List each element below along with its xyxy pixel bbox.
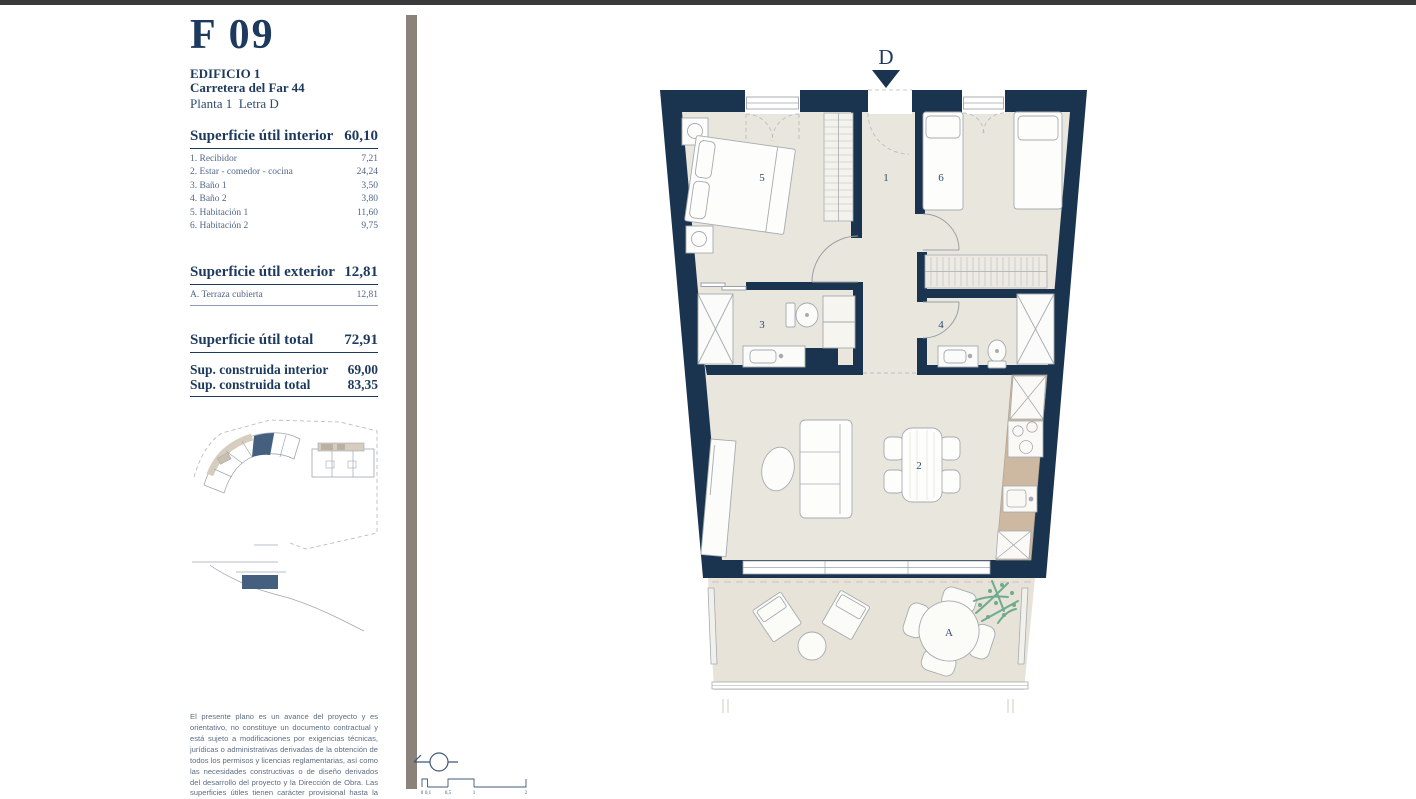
terrace bbox=[708, 576, 1035, 713]
shelf-unit bbox=[823, 296, 855, 348]
toilet bbox=[786, 303, 818, 327]
hob bbox=[1008, 421, 1043, 457]
room-label-living: 2 bbox=[916, 460, 922, 472]
room-label-bath1: 3 bbox=[759, 319, 765, 331]
room-label-bath2: 4 bbox=[938, 319, 944, 331]
room-label-bedroom2: 6 bbox=[938, 172, 944, 184]
entrance-opening bbox=[868, 87, 912, 114]
entrance-marker-icon bbox=[872, 70, 900, 88]
scale-tick-label: 2 bbox=[525, 791, 528, 796]
wardrobe bbox=[824, 113, 853, 221]
room-label-bedroom1: 5 bbox=[759, 172, 765, 184]
sink bbox=[938, 346, 978, 367]
scale-bar: 0 0,1 0,5 1 2 bbox=[418, 773, 538, 799]
double-bed bbox=[685, 135, 796, 234]
side-table bbox=[798, 632, 826, 660]
floor-plan: D bbox=[0, 0, 1416, 799]
single-bed bbox=[1014, 112, 1062, 209]
plan-sheet: F 09 EDIFICIO 1 Carretera del Far 44 Pla… bbox=[0, 0, 1416, 799]
single-bed bbox=[923, 112, 963, 210]
shower bbox=[698, 294, 733, 364]
dining-table bbox=[902, 428, 942, 502]
entrance-label: D bbox=[878, 45, 893, 69]
scale-tick-label: 0,5 bbox=[445, 791, 452, 796]
sofa bbox=[800, 420, 852, 518]
nightstand bbox=[686, 226, 713, 253]
room-label-hall: 1 bbox=[883, 172, 889, 184]
sliding-door bbox=[743, 561, 990, 574]
toilet bbox=[988, 340, 1006, 368]
room-label-terrace: A bbox=[945, 627, 953, 639]
scale-tick-label: 0 bbox=[421, 791, 424, 796]
scale-tick-label: 0,1 bbox=[425, 791, 432, 796]
wardrobe bbox=[925, 255, 1047, 288]
sink bbox=[743, 346, 805, 367]
terrace-shadow bbox=[723, 699, 1013, 713]
shower bbox=[1017, 294, 1054, 364]
scale-tick-label: 1 bbox=[473, 791, 476, 796]
